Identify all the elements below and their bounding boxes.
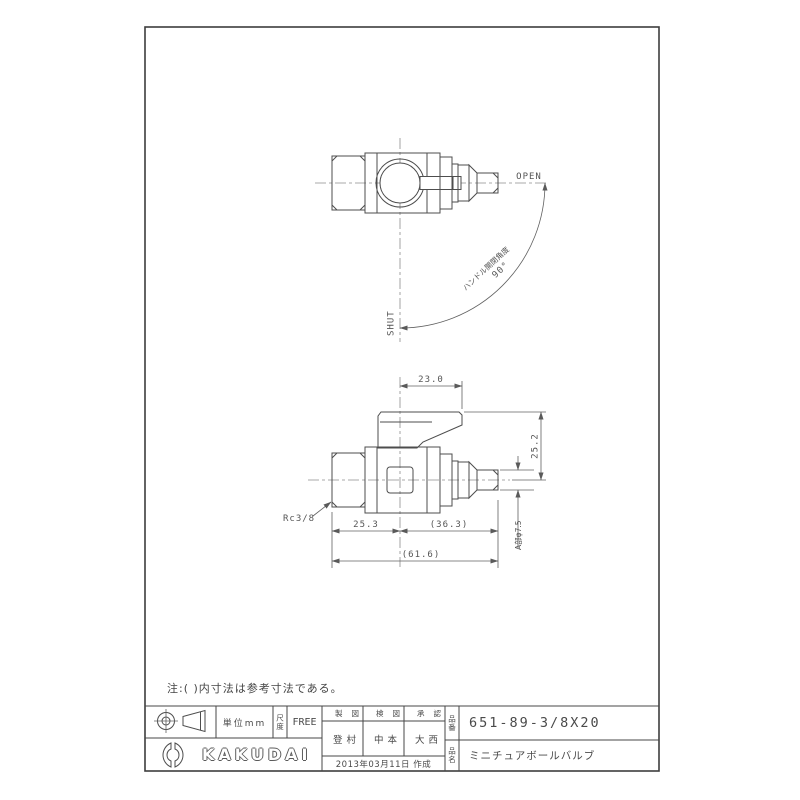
dim-25-2: 25.2: [531, 433, 541, 459]
part-no-cell: 651-89-3/8X20: [459, 706, 669, 740]
projection-symbol-icon: [154, 709, 205, 733]
dim-25-3: 25.3: [353, 520, 379, 530]
ball: [380, 163, 420, 203]
dim-23: 23.0: [418, 375, 444, 385]
handle-lever: [378, 412, 462, 448]
drawing-canvas: OPEN SHUT ハンドル開閉角度 90°: [0, 0, 800, 800]
reference-dimension-note: 注:( )内寸法は参考寸法である。: [167, 680, 343, 696]
scale-value-cell: FREE: [287, 706, 322, 738]
unit-cell: 単位mm: [216, 706, 273, 738]
product-name-cell: ミニチュアボールバルブ: [459, 740, 669, 771]
part-no-label-cell: 品番: [445, 706, 459, 740]
date-cell: 2013年03月11日 作成: [322, 756, 445, 771]
checked-by-cell: 中本: [363, 721, 408, 756]
dim-36-3: (36.3): [430, 520, 469, 530]
scale-label-cell: 尺度: [273, 706, 287, 738]
open-label: OPEN: [516, 172, 542, 182]
brand-logo-icon: [163, 743, 183, 767]
sheet-border: [145, 27, 659, 771]
shut-label: SHUT: [387, 310, 397, 336]
thread-label: Rc3/8: [283, 514, 315, 524]
dim-61-6: (61.6): [402, 550, 441, 560]
product-name-label-cell: 品名: [445, 740, 459, 771]
brand-wordmark: KAKUDAI: [192, 741, 330, 768]
front-view: [308, 377, 510, 567]
drawing-sheet: OPEN SHUT ハンドル開閉角度 90°: [0, 0, 800, 800]
dim-tube-dia: A部φ7.5: [513, 520, 523, 550]
dimensions: 23.0 25.2 A部φ7.5 25.3 (36.3) (61.6) Rc3/…: [283, 375, 546, 568]
approved-by-cell: 大西: [404, 721, 449, 756]
top-view: [315, 138, 548, 342]
